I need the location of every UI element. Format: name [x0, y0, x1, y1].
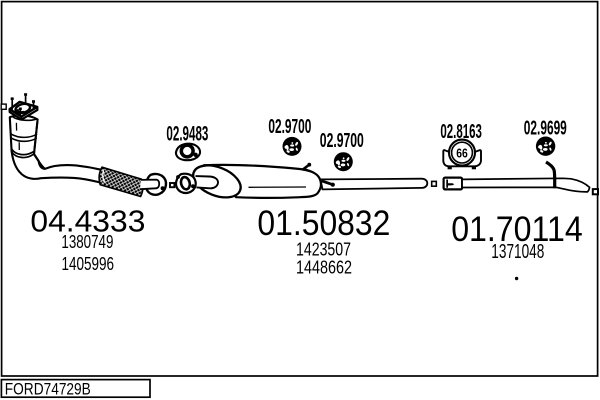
svg-text:02.9700: 02.9700 — [268, 115, 311, 138]
svg-text:66: 66 — [456, 146, 468, 161]
svg-text:02.8163: 02.8163 — [440, 120, 482, 143]
svg-text:02.9699: 02.9699 — [524, 117, 567, 140]
svg-text:02.9700: 02.9700 — [320, 129, 364, 152]
svg-text:1448662: 1448662 — [296, 257, 352, 278]
svg-text:1405996: 1405996 — [62, 253, 115, 274]
svg-text:FORD74729B: FORD74729B — [5, 380, 91, 399]
svg-text:02.9483: 02.9483 — [166, 122, 208, 146]
svg-text:1380749: 1380749 — [61, 231, 113, 252]
svg-text:1371048: 1371048 — [491, 241, 544, 263]
svg-text:01.50832: 01.50832 — [257, 204, 390, 243]
